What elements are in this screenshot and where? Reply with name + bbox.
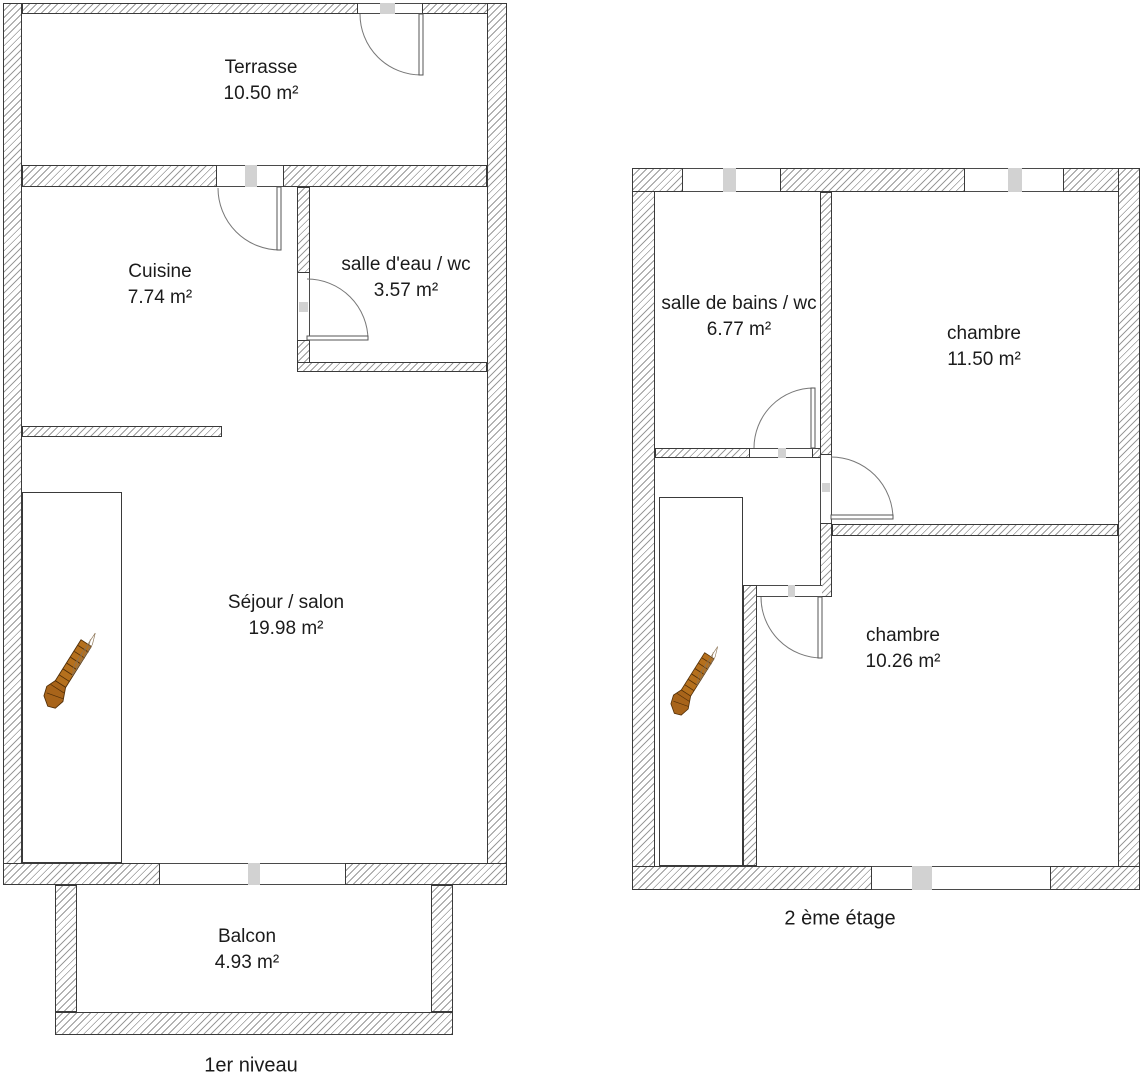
wall-top-left bbox=[22, 3, 358, 14]
stairwell-outline bbox=[659, 497, 743, 866]
wall-left bbox=[3, 3, 22, 885]
wall-bottom-left bbox=[3, 863, 160, 885]
wall-bottom-seg1 bbox=[632, 866, 872, 890]
door-leaf bbox=[831, 515, 893, 519]
threshold-marker bbox=[788, 585, 795, 597]
wall-salle-eau-bottom bbox=[297, 362, 487, 372]
wall-salle-eau-left-upper bbox=[297, 187, 310, 273]
door-arc bbox=[360, 14, 421, 75]
threshold-marker bbox=[248, 863, 260, 885]
wall-left bbox=[632, 168, 655, 890]
room-area: 4.93 m² bbox=[215, 950, 279, 976]
wall-right bbox=[487, 3, 507, 885]
window-marker bbox=[1008, 168, 1022, 192]
door-arc bbox=[761, 597, 822, 658]
door-leaf bbox=[419, 14, 423, 75]
plan-caption-second-floor: 2 ème étage bbox=[784, 908, 895, 931]
room-name: chambre bbox=[947, 321, 1021, 347]
room-name: Balcon bbox=[215, 924, 279, 950]
threshold-marker bbox=[822, 483, 830, 492]
room-name: salle d'eau / wc bbox=[341, 252, 470, 278]
window-opening-chambre-petite bbox=[872, 866, 1050, 890]
room-label-chambre-grande: chambre 11.50 m² bbox=[947, 321, 1021, 373]
door-swings-layer bbox=[0, 0, 1141, 1080]
door-leaf bbox=[307, 336, 368, 340]
room-label-balcon: Balcon 4.93 m² bbox=[215, 924, 279, 976]
window-marker bbox=[912, 866, 932, 890]
threshold-marker bbox=[380, 3, 395, 14]
threshold-marker bbox=[245, 165, 257, 187]
room-name: salle de bains / wc bbox=[661, 291, 816, 317]
room-area: 6.77 m² bbox=[661, 317, 816, 343]
door-leaf bbox=[818, 597, 822, 658]
door-leaf bbox=[811, 388, 815, 448]
stairwell-outline bbox=[22, 492, 122, 863]
wall-bottom-seg2 bbox=[1050, 866, 1140, 890]
threshold-marker bbox=[778, 448, 786, 458]
room-area: 10.26 m² bbox=[866, 649, 941, 675]
wall-top-seg1 bbox=[632, 168, 683, 192]
door-arc bbox=[754, 388, 814, 448]
wall-terrasse-cuisine-left bbox=[22, 165, 217, 187]
room-area: 10.50 m² bbox=[224, 81, 299, 107]
wall-balcony-left bbox=[55, 885, 77, 1012]
room-label-salle-bains-wc: salle de bains / wc 6.77 m² bbox=[661, 291, 816, 343]
room-label-chambre-petite: chambre 10.26 m² bbox=[866, 623, 941, 675]
door-leaf bbox=[277, 187, 281, 250]
wall-balcony-right bbox=[431, 885, 453, 1012]
window-marker bbox=[723, 168, 736, 192]
room-label-cuisine: Cuisine 7.74 m² bbox=[128, 259, 192, 311]
room-area: 11.50 m² bbox=[947, 347, 1021, 373]
room-area: 3.57 m² bbox=[341, 278, 470, 304]
wall-top-seg2 bbox=[780, 168, 965, 192]
wall-terrasse-cuisine-right bbox=[283, 165, 487, 187]
room-name: Terrasse bbox=[224, 55, 299, 81]
door-arc bbox=[831, 457, 893, 519]
wall-bottom-right bbox=[345, 863, 507, 885]
wall-corridor-chambre-petite bbox=[743, 585, 757, 866]
floorplan-canvas: Terrasse 10.50 m² Cuisine 7.74 m² salle … bbox=[0, 0, 1141, 1080]
room-name: chambre bbox=[866, 623, 941, 649]
wall-cuisine-stub bbox=[22, 426, 222, 437]
room-area: 19.98 m² bbox=[228, 616, 344, 642]
wall-bath-chambre bbox=[820, 192, 832, 455]
room-label-salle-eau-wc: salle d'eau / wc 3.57 m² bbox=[341, 252, 470, 304]
wall-right bbox=[1118, 168, 1140, 890]
wall-bath-bottom-left bbox=[655, 448, 750, 458]
threshold-marker bbox=[299, 302, 308, 312]
room-area: 7.74 m² bbox=[128, 285, 192, 311]
plan-caption-first-level: 1er niveau bbox=[204, 1055, 297, 1078]
room-name: Séjour / salon bbox=[228, 590, 344, 616]
wall-balcony-bottom bbox=[55, 1012, 453, 1035]
wall-chambre-grande-bottom bbox=[832, 524, 1118, 536]
room-label-terrasse: Terrasse 10.50 m² bbox=[224, 55, 299, 107]
door-arc bbox=[218, 188, 280, 250]
room-name: Cuisine bbox=[128, 259, 192, 285]
room-label-sejour-salon: Séjour / salon 19.98 m² bbox=[228, 590, 344, 642]
